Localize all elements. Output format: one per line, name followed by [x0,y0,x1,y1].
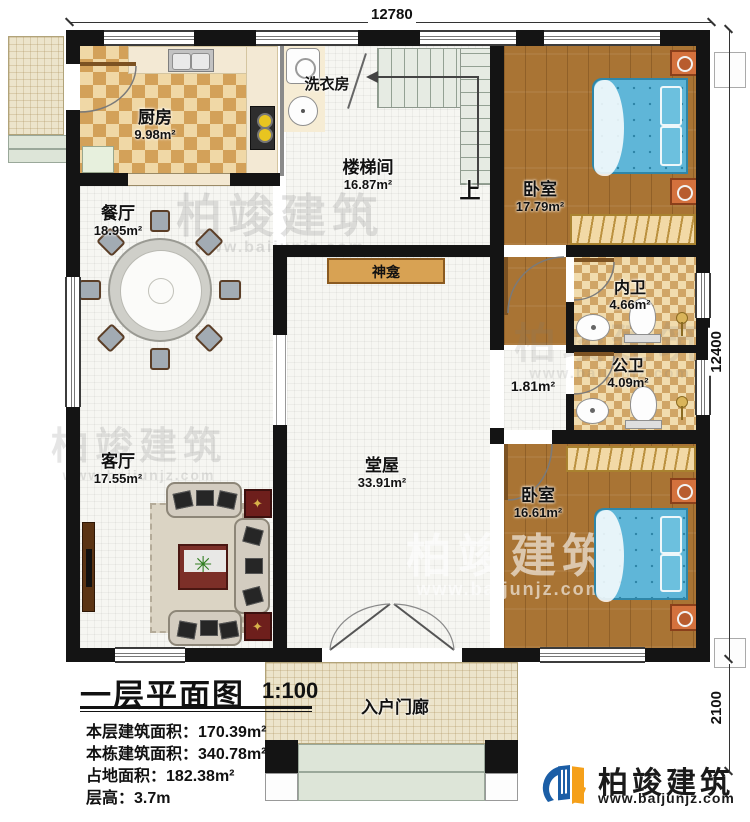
tv [86,549,92,587]
dimension-right: 12400 [708,328,725,376]
window [695,273,711,318]
nightstand [670,478,698,504]
living-label: 客厅17.55m² [78,452,158,486]
kitchen-fridge [82,146,114,173]
sink-private [576,314,610,341]
porch-pillar [265,740,298,773]
porch-step [298,744,485,772]
dining-table [108,238,212,342]
bed-bedroom2 [594,508,688,600]
nightstand [670,604,698,631]
kitchen-label: 厨房9.98m² [110,108,200,142]
wardrobe-bedroom2 [566,446,696,472]
sofa-top [166,482,242,518]
window [544,30,660,46]
side-step [8,135,68,149]
toilet-tank [625,420,662,429]
sink-public [576,398,609,424]
side-table: ✦ [244,489,272,518]
brand-url: www.baijunjz.com [598,790,735,806]
sofa-bottom [168,610,242,646]
window [540,647,645,663]
stat-line: 层高：3.7m [86,784,170,808]
porch-pillar [485,740,518,773]
kitchen-stove [250,106,275,150]
toilet-tank [624,334,661,343]
cased-opening [276,335,286,425]
stat-line: 占地面积：182.38m² [86,762,235,786]
coffee-table: ✳ [178,544,228,590]
toilet-public [630,386,657,422]
corridor-area-label: 1.81m² [498,378,568,394]
ornament-icon: ✦ [252,496,263,512]
bed-bedroom1 [592,78,688,174]
bedroom2-label: 卧室16.61m² [486,486,590,520]
nightstand [670,178,698,205]
porch-label: 入户门廊 [340,698,450,718]
kitchen-laundry-divider [280,46,284,176]
plan-scale: 1:100 [262,678,318,704]
brand-logo-icon [542,758,590,810]
laundry-sink [288,96,318,126]
shrine-label: 神龛 [329,264,443,282]
entrance-double-door [326,598,458,650]
wardrobe-bedroom1 [570,214,696,245]
kitchen-door-arc [80,66,136,112]
stat-line: 本栋建筑面积：340.78m² [86,740,267,764]
window [420,30,516,46]
laundry-label: 洗衣房 [292,76,362,93]
dimension-line-porch [729,664,730,772]
dimension-top: 12780 [368,6,416,23]
window [115,647,185,663]
plant-icon: ✳ [194,554,212,576]
side-table: ✦ [244,612,272,641]
kitchen-sink [168,49,214,72]
hall-label: 堂屋33.91m² [332,456,432,490]
floor-plan: 12780 12400 2100 柏竣建筑 www.baijunjz.com 柏… [0,0,750,822]
dining-chair [79,280,101,300]
sofa-right [234,518,270,614]
side-step [8,149,68,163]
stairwell-label: 楼梯间16.87m² [318,158,418,192]
stat-line: 本层建筑面积：170.39m² [86,718,267,742]
side-steps-platform [8,36,64,135]
nightstand [670,50,698,76]
shrine-cabinet: 神龛 [327,258,445,284]
dining-chair [219,280,241,300]
dimension-line-right [729,30,730,660]
ac-platform [714,52,746,88]
stair-up-label: 上 [450,180,490,204]
bedroom1-door-arc [508,257,564,313]
porch-step [298,772,485,801]
window [104,30,194,46]
dining-chair [150,348,170,370]
window [65,277,81,407]
ac-platform [714,638,746,668]
tv-cabinet [82,522,95,612]
ornament-icon: ✦ [252,619,263,635]
hall-floor [287,257,490,648]
kitchen-pass-through [128,173,230,186]
stair-up-arrow [366,71,378,83]
dining-label: 餐厅18.95m² [78,204,158,238]
stair-flight-upper [377,48,461,108]
bath-public-label: 公卫4.09m² [588,358,668,391]
dimension-porch: 2100 [708,688,725,727]
bedroom1-label: 卧室17.79m² [490,180,590,214]
window [256,30,358,46]
bath-private-label: 内卫4.66m² [590,280,670,313]
